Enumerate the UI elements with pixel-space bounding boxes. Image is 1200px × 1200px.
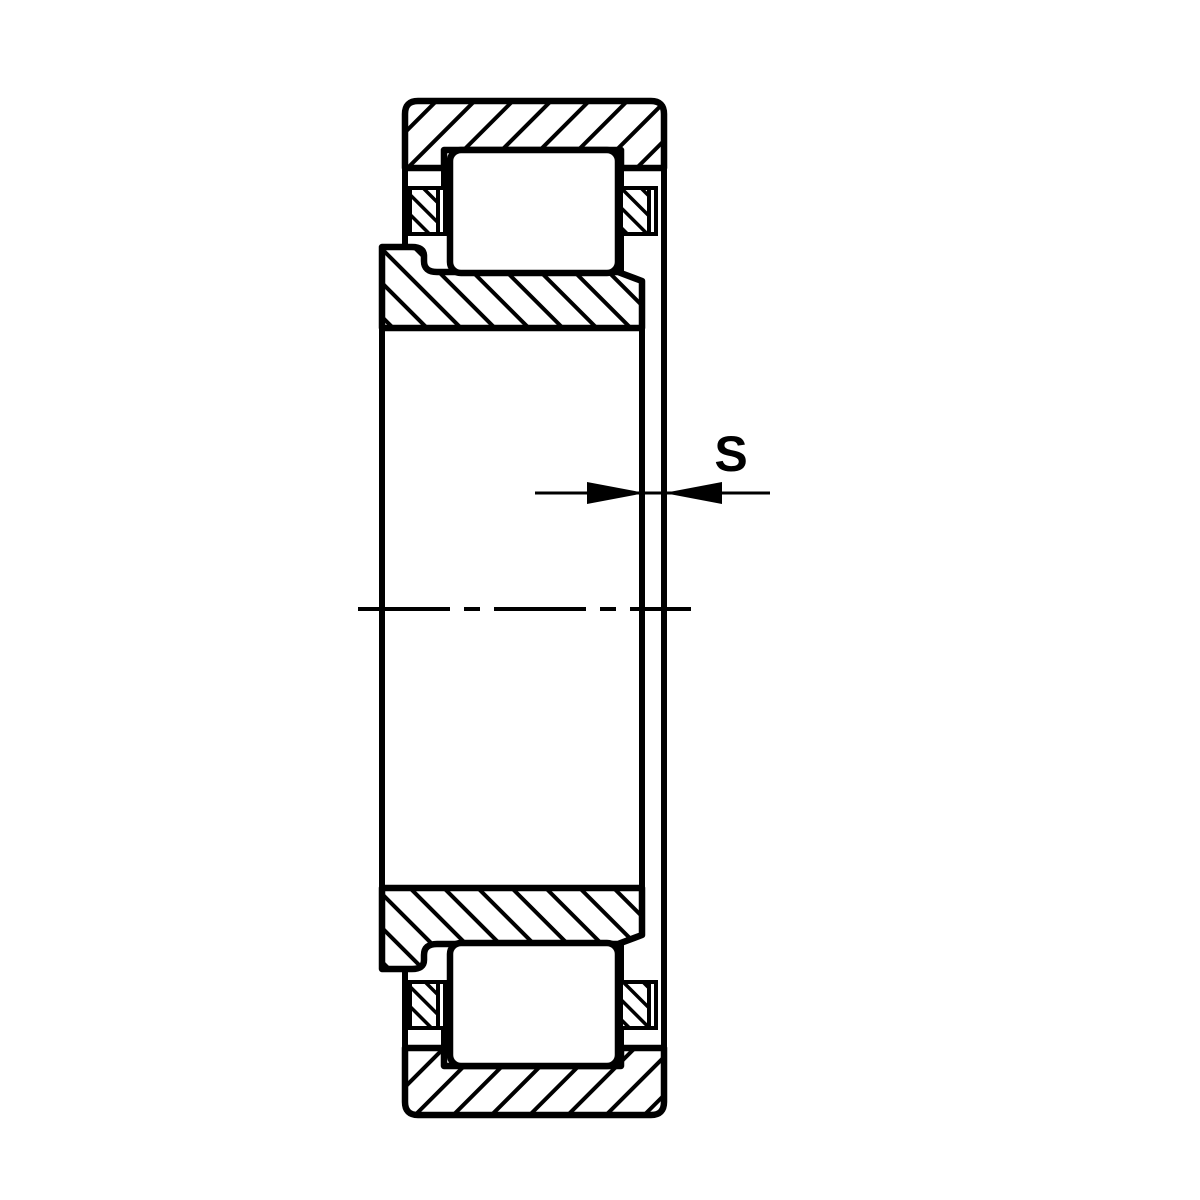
cage-section-bottom-right [621, 982, 656, 1028]
dimension-label-s: S [714, 426, 747, 482]
bearing-cross-section-drawing: S [0, 0, 1200, 1200]
cage-section-top-left [410, 188, 445, 234]
cage-section-top-right [621, 188, 656, 234]
cage-section-bottom-left [410, 982, 445, 1028]
roller-bottom [450, 943, 618, 1066]
roller-top [450, 150, 618, 273]
bearing-diagram-canvas: S [0, 0, 1200, 1200]
cage-bar-section [621, 188, 649, 234]
cage-bar-section [621, 982, 649, 1028]
cage-bar-section [410, 188, 438, 234]
cage-bar-section [410, 982, 438, 1028]
